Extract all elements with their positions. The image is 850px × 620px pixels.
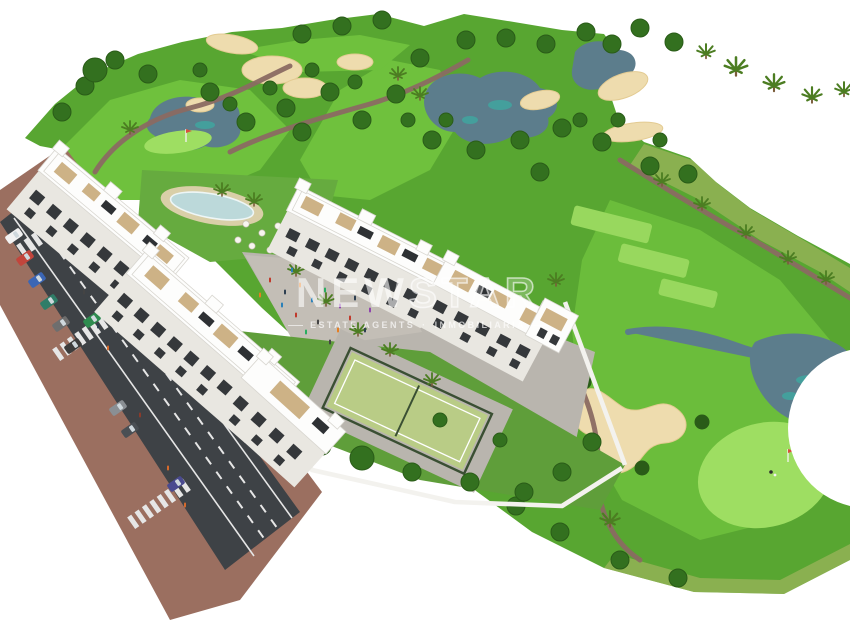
- scene-canvas: [0, 0, 850, 620]
- aerial-render: NEWSTAR ESTATE AGENTS · INMOBILIARIA: [0, 0, 850, 620]
